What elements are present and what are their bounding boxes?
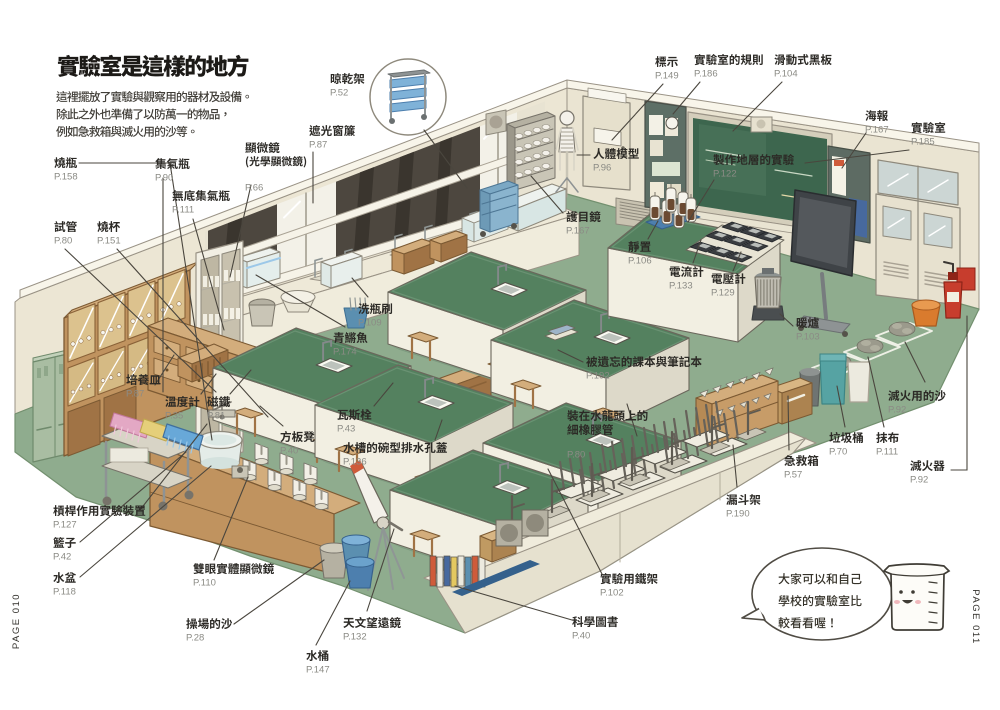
svg-text:P.129: P.129 <box>711 288 735 299</box>
svg-text:P.70: P.70 <box>829 447 847 458</box>
svg-text:P.43: P.43 <box>337 424 355 435</box>
svg-text:P.167: P.167 <box>865 125 889 136</box>
svg-text:P.136: P.136 <box>343 457 367 468</box>
svg-text:P.87: P.87 <box>309 140 327 151</box>
svg-text:P.35: P.35 <box>165 411 183 422</box>
svg-text:P.158: P.158 <box>54 172 78 183</box>
svg-text:P.127: P.127 <box>53 520 77 531</box>
svg-text:P.28: P.28 <box>186 633 204 644</box>
svg-text:P.167: P.167 <box>566 226 590 237</box>
svg-text:P.40: P.40 <box>280 446 298 457</box>
svg-text:P.111: P.111 <box>172 205 194 216</box>
svg-text:P.92: P.92 <box>910 475 928 486</box>
svg-text:P.57: P.57 <box>784 470 802 481</box>
svg-text:P.133: P.133 <box>669 281 693 292</box>
svg-text:P.147: P.147 <box>306 665 330 676</box>
svg-text:P.92: P.92 <box>888 405 906 416</box>
svg-text:P.185: P.185 <box>911 137 935 148</box>
svg-text:P.190: P.190 <box>726 509 750 520</box>
svg-text:P.118: P.118 <box>53 587 76 598</box>
svg-text:P.122: P.122 <box>713 169 737 180</box>
svg-text:P.42: P.42 <box>53 552 71 563</box>
svg-text:P.106: P.106 <box>628 256 652 267</box>
svg-text:P.66: P.66 <box>245 183 263 194</box>
svg-text:PAGE 010: PAGE 010 <box>11 593 22 649</box>
svg-text:P.80: P.80 <box>54 236 72 247</box>
svg-text:P.40: P.40 <box>572 631 590 642</box>
svg-text:P.80: P.80 <box>567 450 585 461</box>
svg-text:P.52: P.52 <box>330 88 348 99</box>
svg-text:P.110: P.110 <box>193 578 216 589</box>
svg-text:P.192: P.192 <box>586 371 610 382</box>
svg-text:P.104: P.104 <box>774 69 798 80</box>
svg-text:P.87: P.87 <box>126 389 144 400</box>
svg-text:P.109: P.109 <box>358 318 382 329</box>
svg-text:P.111: P.111 <box>876 447 898 458</box>
svg-text:P.174: P.174 <box>333 347 357 358</box>
svg-text:PAGE 011: PAGE 011 <box>970 589 981 644</box>
svg-text:P.96: P.96 <box>593 163 611 174</box>
svg-text:P.81: P.81 <box>207 411 225 422</box>
svg-text:P.132: P.132 <box>343 632 367 643</box>
svg-text:P.102: P.102 <box>600 588 624 599</box>
svg-text:P.186: P.186 <box>694 69 718 80</box>
svg-text:P.151: P.151 <box>97 236 121 247</box>
svg-text:P.90: P.90 <box>155 173 173 184</box>
svg-text:P.149: P.149 <box>655 71 679 82</box>
svg-text:P.103: P.103 <box>796 332 820 343</box>
